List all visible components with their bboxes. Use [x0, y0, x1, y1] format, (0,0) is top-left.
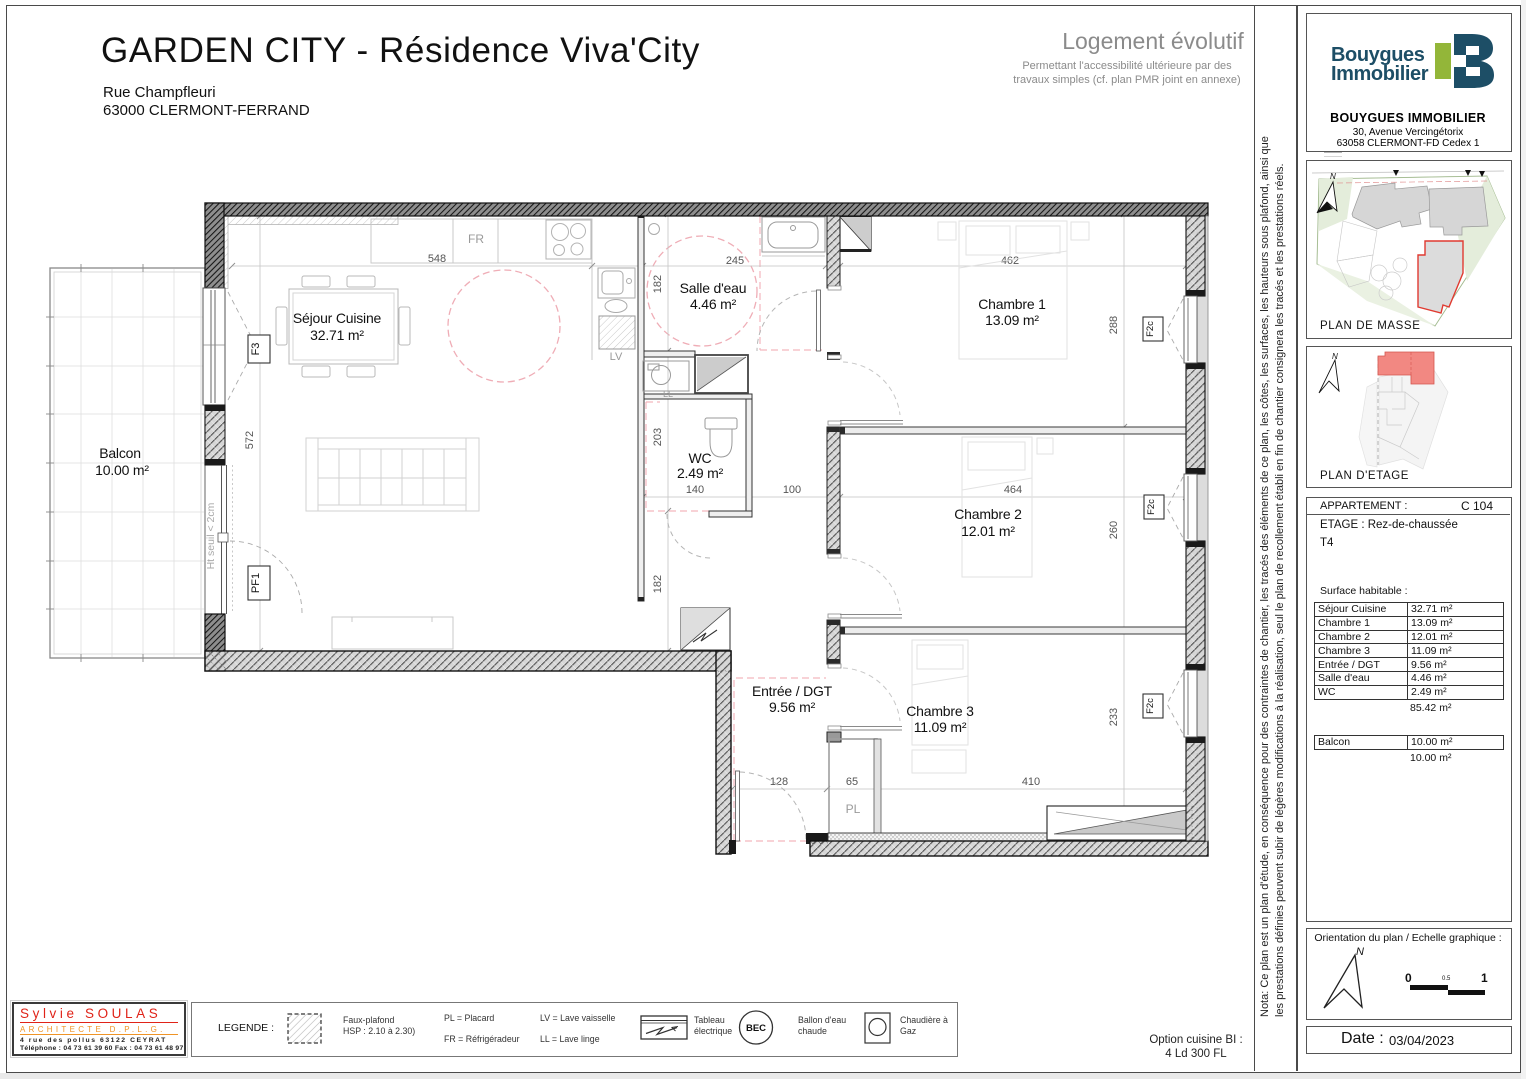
svg-text:BEC: BEC [746, 1023, 766, 1034]
svg-text:10.00 m²: 10.00 m² [95, 462, 149, 478]
svg-text:203: 203 [652, 428, 664, 446]
svg-text:245: 245 [726, 255, 744, 267]
svg-text:2.49 m²: 2.49 m² [677, 465, 724, 481]
svg-text:100: 100 [783, 484, 801, 496]
svg-text:F2c: F2c [1145, 698, 1156, 714]
svg-text:9.56 m²: 9.56 m² [769, 699, 816, 715]
svg-text:PLAN DE MASSE: PLAN DE MASSE [1320, 320, 1420, 332]
svg-text:13.09 m²: 13.09 m² [985, 312, 1039, 328]
svg-text:288: 288 [1108, 316, 1120, 334]
svg-text:Entrée / DGT: Entrée / DGT [752, 683, 833, 699]
svg-text:Ht seuil < 2cm: Ht seuil < 2cm [205, 502, 217, 569]
svg-text:233: 233 [1108, 708, 1120, 726]
svg-text:12.01 m²: 12.01 m² [961, 523, 1015, 539]
svg-text:F3: F3 [250, 343, 262, 356]
svg-text:F2c: F2c [1146, 499, 1157, 515]
svg-text:LL: LL [663, 389, 673, 399]
svg-text:182: 182 [652, 575, 664, 593]
svg-text:11.09 m²: 11.09 m² [914, 719, 967, 735]
svg-text:Chambre 1: Chambre 1 [978, 296, 1046, 312]
svg-text:PL: PL [846, 802, 861, 816]
svg-text:N: N [1330, 172, 1336, 181]
svg-text:32.71 m²: 32.71 m² [310, 327, 364, 343]
svg-text:260: 260 [1108, 521, 1120, 539]
svg-text:128: 128 [770, 776, 788, 788]
svg-text:Salle d'eau: Salle d'eau [680, 280, 747, 296]
svg-text:Chambre 3: Chambre 3 [906, 703, 974, 719]
svg-text:PLAN D'ETAGE: PLAN D'ETAGE [1320, 470, 1409, 482]
svg-text:4.46 m²: 4.46 m² [690, 296, 737, 312]
svg-text:F2c: F2c [1145, 321, 1156, 337]
svg-text:Balcon: Balcon [99, 445, 141, 461]
svg-text:Séjour Cuisine: Séjour Cuisine [293, 310, 382, 326]
svg-text:182: 182 [652, 275, 664, 293]
svg-text:N: N [1332, 352, 1338, 361]
svg-text:548: 548 [428, 253, 446, 265]
svg-text:140: 140 [686, 484, 704, 496]
svg-text:410: 410 [1022, 776, 1040, 788]
svg-text:N: N [1356, 946, 1364, 958]
svg-text:464: 464 [1004, 484, 1022, 496]
svg-text:Chambre 2: Chambre 2 [954, 506, 1022, 522]
svg-text:WC: WC [689, 450, 712, 466]
svg-text:LV: LV [610, 351, 623, 363]
svg-text:FR: FR [468, 232, 484, 246]
svg-text:PF1: PF1 [250, 573, 262, 593]
svg-text:65: 65 [846, 776, 858, 788]
svg-text:572: 572 [244, 431, 256, 449]
